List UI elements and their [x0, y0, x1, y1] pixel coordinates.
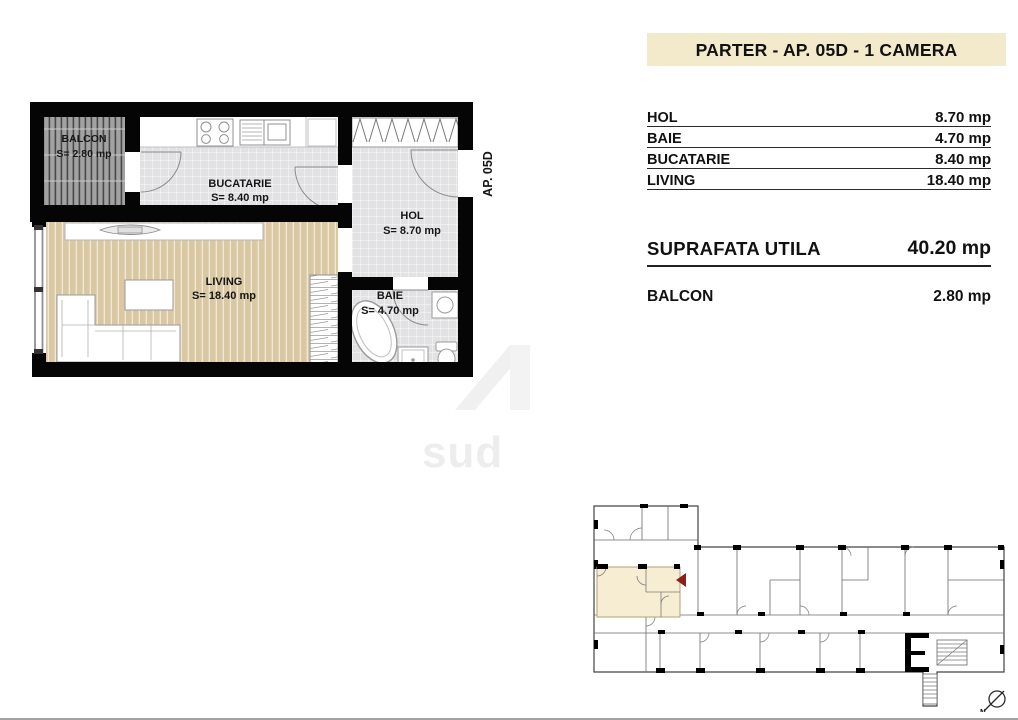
washing-machine-icon [432, 292, 458, 318]
living-area: S= 18.40 mp [192, 290, 256, 302]
balcony-area-value: 2.80 mp [933, 288, 991, 306]
bathroom-area: S= 4.70 mp [361, 305, 419, 317]
apartment-floor-plan: BALCON S= 2.80 mp BUCATARIE S= 8.40 mp H… [28, 93, 498, 398]
table-row: BUCATARIE 8.40 mp [647, 148, 991, 169]
total-area-row: SUPRAFATA UTILA 40.20 mp [647, 237, 991, 267]
living-wardrobe-icon [310, 275, 338, 368]
watermark-text: sud [422, 428, 503, 478]
kitchen-label: BUCATARIE [208, 178, 271, 190]
north-compass-icon: N [980, 691, 1005, 712]
balcony-area: S= 2.80 mp [56, 148, 111, 160]
table-row: LIVING 18.40 mp [647, 169, 991, 190]
room-label: HOL [647, 110, 678, 126]
room-label: LIVING [647, 173, 695, 189]
fridge-icon [308, 119, 336, 146]
room-value: 8.40 mp [935, 151, 991, 168]
coffee-table-icon [125, 280, 173, 310]
table-row: HOL 8.70 mp [647, 106, 991, 127]
total-area-label: SUPRAFATA UTILA [647, 238, 821, 260]
building-overview-plan: N [592, 502, 1012, 717]
kitchen-area: S= 8.40 mp [211, 192, 269, 204]
living-label: LIVING [206, 276, 243, 288]
table-row: BAIE 4.70 mp [647, 127, 991, 148]
hall-label: HOL [400, 210, 424, 222]
unit-tag: AP. 05D [481, 151, 495, 197]
page-title: PARTER - AP. 05D - 1 CAMERA [647, 33, 1006, 66]
hall-wardrobe-icon [352, 118, 458, 147]
window-icon [34, 225, 43, 354]
total-area-value: 40.20 mp [908, 237, 991, 260]
north-label: N [980, 708, 986, 712]
bathroom-label: BAIE [377, 290, 403, 302]
room-label: BAIE [647, 131, 682, 147]
room-value: 18.40 mp [927, 172, 991, 189]
room-value: 8.70 mp [935, 109, 991, 126]
room-label: BUCATARIE [647, 152, 730, 168]
kitchen-sink-icon [240, 120, 290, 145]
balcony-area-label: BALCON [647, 288, 713, 306]
highlighted-unit [597, 564, 680, 617]
balcony-label: BALCON [62, 133, 107, 145]
balcony-floor [44, 117, 125, 205]
tv-cabinet-icon [65, 223, 263, 240]
hall-area: S= 8.70 mp [383, 225, 441, 237]
stove-icon [197, 119, 233, 146]
area-table: HOL 8.70 mp BAIE 4.70 mp BUCATARIE 8.40 … [647, 106, 991, 190]
balcony-area-row: BALCON 2.80 mp [647, 288, 991, 306]
room-value: 4.70 mp [935, 130, 991, 147]
